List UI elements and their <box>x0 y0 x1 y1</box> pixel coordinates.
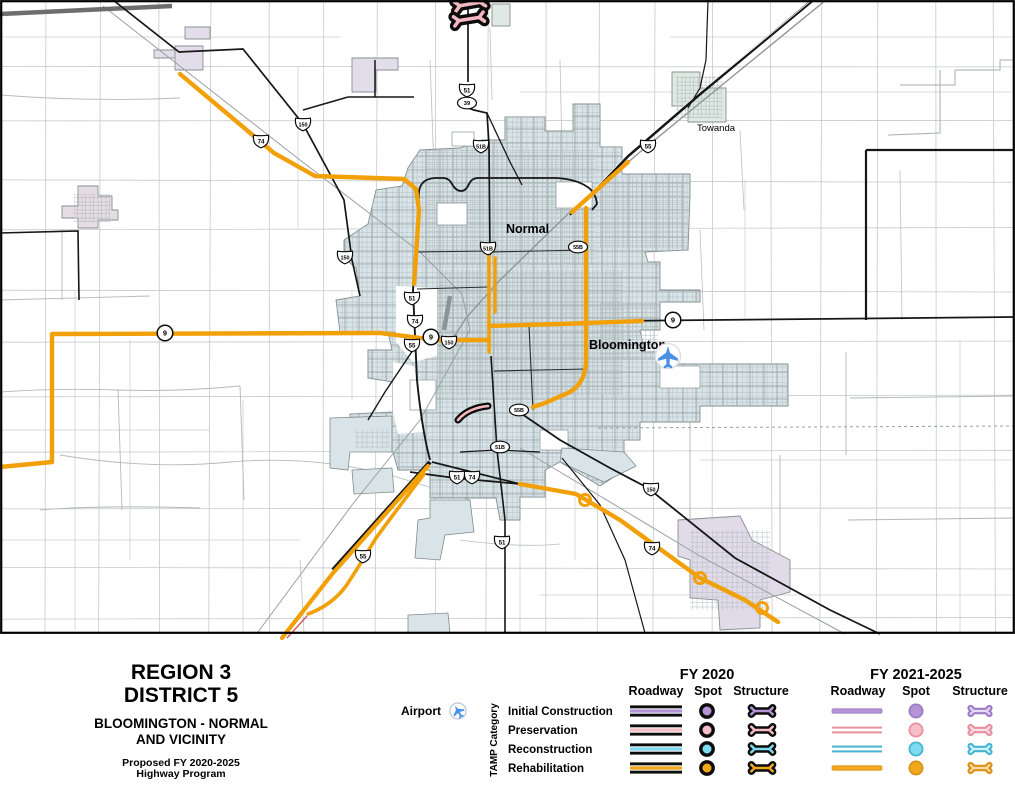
svg-text:74: 74 <box>412 318 419 325</box>
svg-text:Spot: Spot <box>902 684 931 698</box>
svg-text:9: 9 <box>671 316 675 325</box>
svg-text:Structure: Structure <box>952 684 1008 698</box>
svg-text:Towanda: Towanda <box>697 123 736 134</box>
svg-text:51B: 51B <box>476 144 486 150</box>
svg-text:AND VICINITY: AND VICINITY <box>136 732 226 747</box>
svg-text:Spot: Spot <box>694 684 723 698</box>
svg-text:51: 51 <box>464 87 471 94</box>
svg-text:55: 55 <box>645 143 652 150</box>
svg-text:Airport: Airport <box>401 704 441 718</box>
svg-text:74: 74 <box>649 545 656 552</box>
svg-text:REGION 3: REGION 3 <box>131 661 231 684</box>
svg-text:9: 9 <box>429 333 433 342</box>
svg-text:BLOOMINGTON - NORMAL: BLOOMINGTON - NORMAL <box>94 716 268 731</box>
svg-text:Preservation: Preservation <box>508 725 578 737</box>
svg-text:150: 150 <box>445 340 454 346</box>
svg-text:TAMP Category: TAMP Category <box>489 703 500 777</box>
svg-text:55: 55 <box>409 342 416 349</box>
svg-text:150: 150 <box>299 122 308 128</box>
svg-text:55B: 55B <box>514 408 524 414</box>
svg-text:150: 150 <box>647 487 656 493</box>
svg-text:Structure: Structure <box>733 684 789 698</box>
svg-text:Normal: Normal <box>506 222 549 236</box>
svg-text:Rehabilitation: Rehabilitation <box>508 763 584 775</box>
svg-text:51B: 51B <box>495 445 505 451</box>
svg-text:Roadway: Roadway <box>629 684 684 698</box>
svg-text:Bloomington: Bloomington <box>589 338 666 352</box>
svg-text:55: 55 <box>360 553 367 560</box>
svg-text:Highway Program: Highway Program <box>136 768 225 780</box>
svg-text:Reconstruction: Reconstruction <box>508 744 592 756</box>
svg-text:39: 39 <box>464 101 471 107</box>
svg-text:51: 51 <box>499 539 506 546</box>
svg-text:DISTRICT 5: DISTRICT 5 <box>124 684 239 707</box>
svg-text:150: 150 <box>341 255 350 261</box>
svg-text:55B: 55B <box>573 245 583 251</box>
svg-text:51: 51 <box>409 295 416 302</box>
svg-text:FY 2021-2025: FY 2021-2025 <box>870 667 962 683</box>
svg-text:51: 51 <box>454 474 461 481</box>
svg-text:FY 2020: FY 2020 <box>680 667 735 683</box>
svg-text:74: 74 <box>469 474 476 481</box>
svg-text:9: 9 <box>163 329 167 338</box>
svg-text:Roadway: Roadway <box>831 684 886 698</box>
svg-text:51B: 51B <box>483 246 493 252</box>
svg-text:74: 74 <box>258 138 265 145</box>
svg-text:Initial Construction: Initial Construction <box>508 706 613 718</box>
